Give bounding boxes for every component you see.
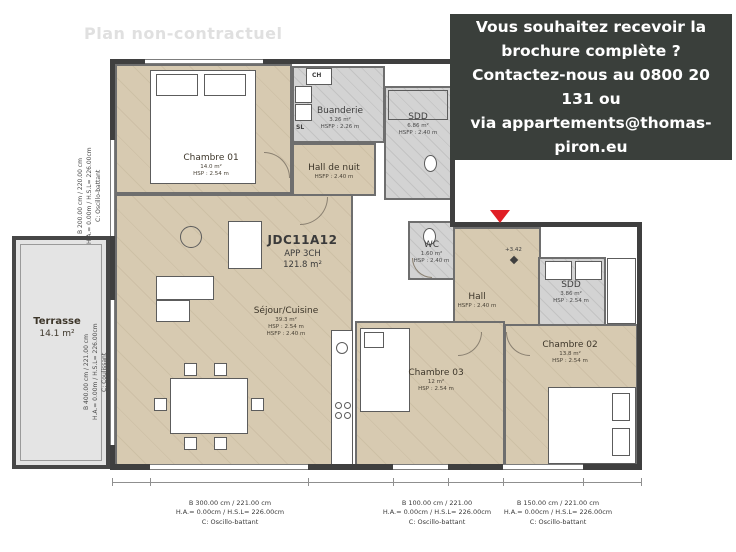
floorplan-page: Plan non-contractuel [0, 0, 736, 552]
dining-table [170, 378, 248, 434]
label-hall-de-nuit: Hall de nuit HSFP : 2.40 m [292, 163, 376, 181]
washbasin-left [545, 261, 572, 280]
sofa-main [156, 276, 214, 300]
appliance-washer [295, 86, 312, 103]
window-chambre01-left [110, 140, 115, 236]
washbasin-right [575, 261, 602, 280]
window-chambre02-bottom [503, 464, 583, 470]
chair [214, 363, 227, 376]
chair [184, 437, 197, 450]
label-sejour-cuisine: Séjour/Cuisine 39.3 m² HSP : 2.54 m HSFP… [225, 306, 347, 338]
label-ch: CH [312, 72, 321, 79]
label-chambre02: Chambre 02 13.8 m² HSP : 2.54 m [506, 340, 634, 365]
dim-tick [112, 478, 113, 486]
window-spec-left-2: B 400.00 cm / 221.00 cm H.A.= 0.00m / H.… [82, 302, 108, 442]
pillow [612, 393, 630, 421]
dim-tick [150, 478, 151, 486]
dim-tick [448, 478, 449, 486]
chair [214, 437, 227, 450]
hob-burner [344, 402, 351, 409]
window-spec-bottom-1: B 300.00 cm / 221.00 cm H.A.= 0.00cm / H… [140, 499, 320, 527]
label-buanderie: Buanderie 3.26 m² HSFP : 2.26 m [300, 106, 380, 131]
dim-tick [583, 478, 584, 486]
hob-burner [335, 412, 342, 419]
dim-tick [641, 478, 642, 486]
hob-burner [344, 412, 351, 419]
sofa-chaise [156, 300, 190, 322]
label-sdd-right: SDD 3.86 m² HSP : 2.54 m [538, 280, 604, 305]
kitchen-sink [336, 342, 348, 354]
closet-chambre02 [607, 258, 636, 324]
label-level: +3.42 [505, 247, 522, 253]
label-hall: Hall HSFP : 2.40 m [437, 292, 517, 310]
label-sdd-top: SDD 6.86 m² HSFP : 2.40 m [388, 112, 448, 137]
dim-tick [308, 478, 309, 486]
window-sejour-bottom [150, 464, 308, 470]
entrance-arrow-icon [490, 210, 510, 223]
label-sl: SL [296, 124, 304, 131]
pillow [204, 74, 246, 96]
pillow [612, 428, 630, 456]
window-chambre03-bottom [393, 464, 448, 470]
wall-right [637, 222, 642, 468]
dim-tick [503, 478, 504, 486]
watermark-text: Plan non-contractuel [84, 24, 282, 43]
hob-burner [335, 402, 342, 409]
pillow [364, 332, 384, 348]
toilet-sdd-top [424, 155, 437, 172]
brochure-banner: Vous souhaitez recevoir la brochure comp… [450, 14, 732, 160]
label-chambre03: Chambre 03 12 m² HSP : 2.54 m [372, 368, 500, 393]
chair [154, 398, 167, 411]
window-spec-left-1: B 200.00 cm / 220.00 cm H.A.= 0.00m / H.… [76, 132, 102, 260]
label-wc: WC 1.60 m² HSP : 2.40 m [408, 240, 455, 265]
chair [184, 363, 197, 376]
dimension-line-bottom [112, 482, 642, 483]
wall-wing-top [450, 222, 642, 227]
pillow [156, 74, 198, 96]
label-chambre01: Chambre 01 14.0 m² HSP : 2.54 m [150, 153, 272, 178]
dim-tick [393, 478, 394, 486]
window-terrasse-slider [110, 300, 115, 445]
rug-round [180, 226, 202, 248]
window-spec-bottom-3: B 150.00 cm / 221.00 cm H.A.= 0.00cm / H… [488, 499, 628, 527]
brochure-banner-text: Vous souhaitez recevoir la brochure comp… [450, 15, 732, 159]
chair [251, 398, 264, 411]
window-chambre01-top [145, 59, 263, 64]
unit-label: JDC11A12 APP 3CH 121.8 m² [245, 233, 360, 271]
